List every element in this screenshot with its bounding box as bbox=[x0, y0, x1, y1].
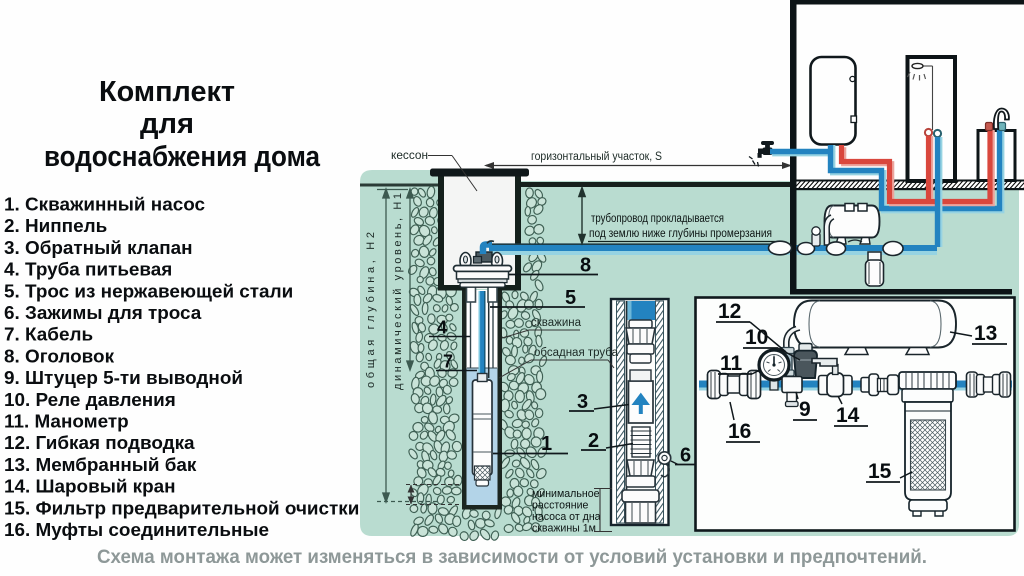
svg-text:скважина: скважина bbox=[531, 317, 582, 329]
svg-text:общая глубина, Н2: общая глубина, Н2 bbox=[365, 232, 377, 388]
svg-text:8. Оголовок: 8. Оголовок bbox=[4, 346, 115, 367]
svg-text:для: для bbox=[140, 108, 194, 140]
svg-text:13: 13 bbox=[974, 322, 997, 345]
svg-text:10: 10 bbox=[745, 326, 768, 349]
svg-text:скважины 1м: скважины 1м bbox=[532, 523, 596, 535]
svg-text:13. Мембранный бак: 13. Мембранный бак bbox=[4, 455, 197, 476]
svg-text:расстояние: расстояние bbox=[532, 500, 589, 512]
svg-text:под землю ниже глубины про: под землю ниже глубины промерзания bbox=[589, 228, 772, 240]
svg-text:насоса от дна: насоса от дна bbox=[532, 511, 601, 523]
svg-text:Комплект: Комплект bbox=[99, 76, 235, 108]
svg-text:12: 12 bbox=[718, 300, 741, 323]
svg-text:2: 2 bbox=[588, 430, 599, 452]
svg-text:9. Штуцер 5-ти выводной: 9. Штуцер 5-ти выводной bbox=[4, 368, 243, 389]
svg-text:14. Шаровый кран: 14. Шаровый кран bbox=[4, 477, 176, 498]
svg-text:7. Кабель: 7. Кабель bbox=[4, 325, 93, 346]
svg-text:трубопровод прокладывается: трубопровод прокладывается bbox=[591, 213, 724, 225]
svg-text:6: 6 bbox=[680, 445, 691, 467]
svg-text:7: 7 bbox=[443, 352, 453, 372]
svg-text:15: 15 bbox=[868, 460, 892, 483]
svg-text:1. Скважинный насос: 1. Скважинный насос bbox=[4, 195, 205, 216]
svg-text:4: 4 bbox=[437, 318, 447, 338]
svg-text:обсадная труба: обсадная труба bbox=[534, 347, 619, 359]
svg-text:4. Труба питьевая: 4. Труба питьевая bbox=[4, 260, 172, 281]
svg-text:9: 9 bbox=[799, 398, 811, 421]
svg-text:1: 1 bbox=[541, 433, 552, 455]
svg-text:15. Фильтр предварительной очи: 15. Фильтр предварительной очистки bbox=[4, 498, 359, 519]
svg-text:16. Муфты соединительные: 16. Муфты соединительные bbox=[4, 520, 269, 541]
svg-text:5. Трос из нержавеющей стали: 5. Трос из нержавеющей стали bbox=[4, 281, 293, 302]
svg-text:2. Ниппель: 2. Ниппель bbox=[4, 216, 107, 237]
svg-text:водоснабжения дома: водоснабжения дома bbox=[44, 141, 321, 173]
svg-text:11. Манометр: 11. Манометр bbox=[4, 412, 129, 433]
svg-text:8: 8 bbox=[580, 255, 591, 277]
svg-text:6. Зажимы для троса: 6. Зажимы для троса bbox=[4, 303, 202, 324]
svg-text:Схема монтажа может изменяться: Схема монтажа может изменяться в зависим… bbox=[97, 546, 927, 568]
svg-text:горизонтальный участок, S: горизонтальный участок, S bbox=[531, 151, 662, 163]
svg-text:5: 5 bbox=[565, 287, 576, 309]
svg-text:14: 14 bbox=[836, 404, 860, 427]
svg-text:минимальное: минимальное bbox=[532, 488, 600, 500]
svg-text:3. Обратный клапан: 3. Обратный клапан bbox=[4, 238, 193, 259]
svg-text:11: 11 bbox=[720, 352, 743, 375]
svg-text:10. Реле давления: 10. Реле давления bbox=[4, 390, 176, 411]
svg-text:12. Гибкая подводка: 12. Гибкая подводка bbox=[4, 433, 195, 454]
svg-text:16: 16 bbox=[728, 420, 751, 443]
svg-text:3: 3 bbox=[577, 391, 588, 413]
svg-text:кессон: кессон bbox=[391, 150, 428, 162]
